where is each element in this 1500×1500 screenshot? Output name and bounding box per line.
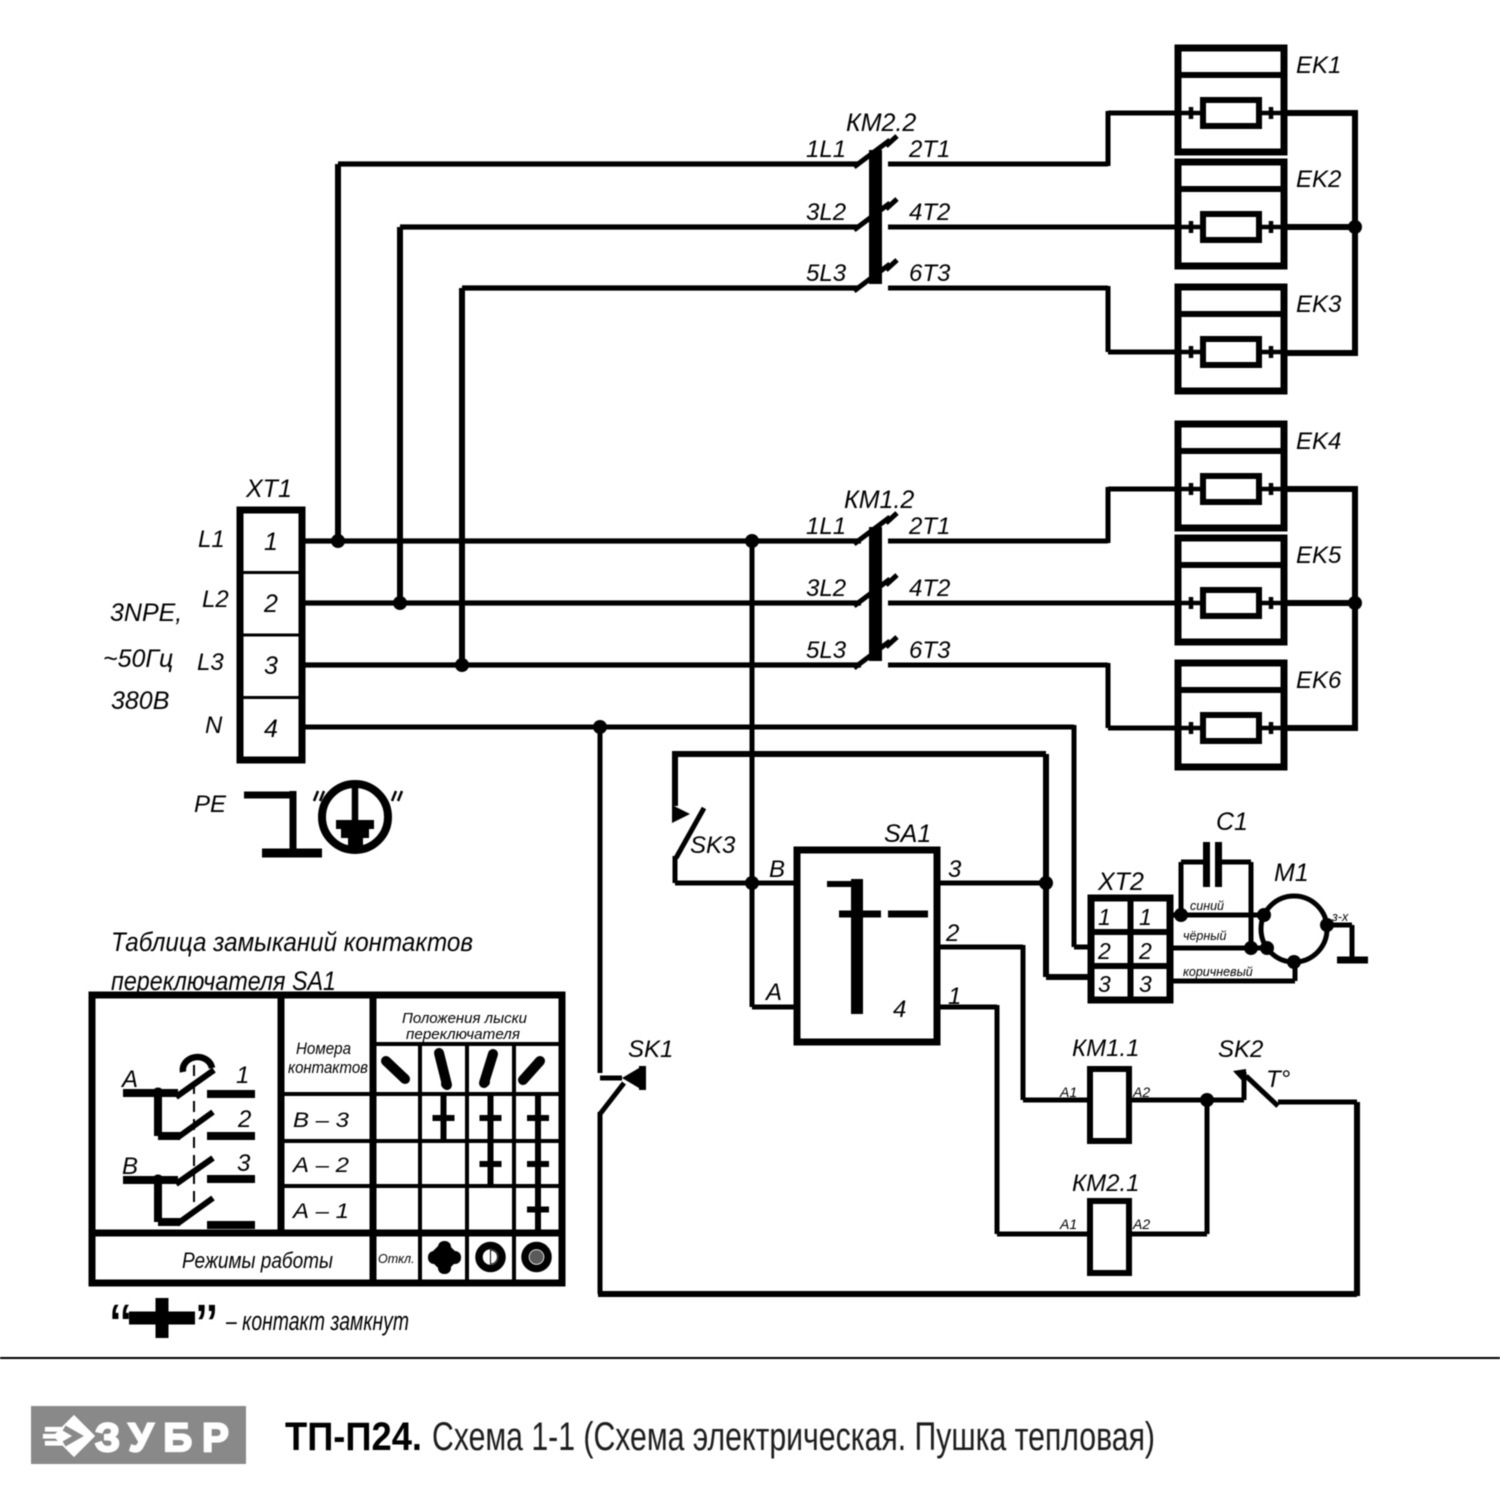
svg-text:3L2: 3L2 (806, 199, 846, 226)
svg-text:380В: 380В (111, 687, 169, 715)
svg-text:В: В (122, 1153, 138, 1180)
svg-text:2: 2 (945, 920, 959, 947)
svg-text:1: 1 (264, 528, 278, 556)
svg-text:синий: синий (1190, 899, 1224, 913)
svg-text:XT2: XT2 (1097, 868, 1144, 896)
svg-text:~50Гц: ~50Гц (103, 645, 173, 673)
svg-text:L2: L2 (202, 586, 229, 613)
svg-text:КМ1.2: КМ1.2 (844, 486, 914, 514)
svg-text:”: ” (196, 1291, 217, 1363)
svg-text:1: 1 (236, 1062, 249, 1089)
svg-text:3: 3 (237, 1150, 251, 1177)
svg-text:коричневый: коричневый (1183, 965, 1253, 979)
svg-text:2T1: 2T1 (908, 513, 950, 540)
svg-text:2T1: 2T1 (908, 136, 950, 163)
svg-text:EK5: EK5 (1296, 542, 1342, 569)
svg-text:SK1: SK1 (628, 1036, 673, 1063)
svg-text:SK2: SK2 (1218, 1036, 1263, 1063)
svg-text:2: 2 (1097, 938, 1111, 964)
svg-text:EK2: EK2 (1296, 166, 1341, 193)
svg-text:3: 3 (264, 652, 278, 680)
svg-text:Номера: Номера (296, 1039, 351, 1058)
svg-text:Положения лыски: Положения лыски (402, 1011, 527, 1027)
svg-text:A1: A1 (1059, 1084, 1077, 1100)
svg-text:КМ2.1: КМ2.1 (1072, 1170, 1140, 1197)
svg-text:2: 2 (263, 590, 278, 618)
svg-text:КМ1.1: КМ1.1 (1072, 1035, 1140, 1062)
svg-text:T°: T° (1266, 1066, 1291, 1093)
svg-text:B: B (769, 856, 785, 883)
svg-text:4T2: 4T2 (909, 199, 950, 226)
svg-text:А – 2: А – 2 (291, 1154, 350, 1177)
svg-text:SA1: SA1 (884, 820, 931, 848)
svg-text:N: N (205, 712, 223, 739)
svg-text:4: 4 (893, 996, 906, 1023)
svg-text:6T3: 6T3 (909, 260, 951, 287)
svg-text:XT1: XT1 (245, 475, 292, 503)
svg-text:А – 1: А – 1 (291, 1200, 349, 1223)
svg-text:1: 1 (1139, 904, 1152, 930)
svg-text:переключателя: переключателя (406, 1027, 520, 1043)
svg-text:A2: A2 (1132, 1216, 1150, 1232)
svg-text:5L3: 5L3 (806, 260, 847, 287)
svg-text:3: 3 (1098, 971, 1111, 997)
svg-text:Режимы работы: Режимы работы (182, 1248, 333, 1273)
svg-text:A: A (764, 979, 782, 1006)
svg-text:EK6: EK6 (1296, 667, 1342, 694)
svg-text:3: 3 (1139, 971, 1152, 997)
svg-text:3NPE,: 3NPE, (110, 599, 182, 627)
svg-text:А: А (120, 1066, 138, 1093)
svg-text:1: 1 (1098, 904, 1111, 930)
svg-text:контактов: контактов (288, 1058, 368, 1077)
svg-text:6T3: 6T3 (909, 637, 951, 664)
svg-text:3: 3 (948, 856, 962, 883)
svg-text:Схема 1-1 (Схема электрическая: Схема 1-1 (Схема электрическая. Пушка те… (432, 1415, 1155, 1459)
svg-text:– контакт замкнут: – контакт замкнут (225, 1306, 409, 1336)
svg-text:Таблица замыканий контактов: Таблица замыканий контактов (111, 927, 473, 957)
svg-text:SK3: SK3 (690, 832, 736, 859)
svg-text:Откл.: Откл. (378, 1252, 415, 1266)
svg-text:1L1: 1L1 (806, 513, 846, 540)
svg-text:L1: L1 (198, 526, 225, 553)
svg-text:A1: A1 (1059, 1216, 1077, 1232)
svg-text:3L2: 3L2 (806, 575, 846, 602)
svg-text:4: 4 (264, 715, 278, 743)
svg-text:В – 3: В – 3 (293, 1109, 349, 1132)
svg-text:PE: PE (194, 791, 227, 818)
svg-text:КМ2.2: КМ2.2 (846, 109, 916, 137)
svg-text:2: 2 (237, 1106, 251, 1133)
svg-text:M1: M1 (1274, 859, 1309, 887)
svg-text:A2: A2 (1132, 1084, 1150, 1100)
svg-text:EK1: EK1 (1296, 52, 1341, 79)
svg-text:L3: L3 (197, 649, 224, 676)
svg-text:1L1: 1L1 (806, 136, 846, 163)
svg-text:2: 2 (1138, 938, 1152, 964)
svg-text:EK3: EK3 (1296, 291, 1342, 318)
svg-text:ЗУБР: ЗУБР (95, 1416, 239, 1460)
svg-text:“: “ (110, 1291, 131, 1363)
svg-text:C1: C1 (1216, 808, 1248, 836)
svg-text:5L3: 5L3 (806, 637, 847, 664)
svg-text:4T2: 4T2 (909, 575, 950, 602)
svg-text:чёрный: чёрный (1183, 929, 1226, 943)
svg-text:з-х: з-х (1331, 910, 1349, 924)
svg-text:ТП-П24.: ТП-П24. (285, 1415, 422, 1459)
svg-text:EK4: EK4 (1296, 428, 1341, 455)
